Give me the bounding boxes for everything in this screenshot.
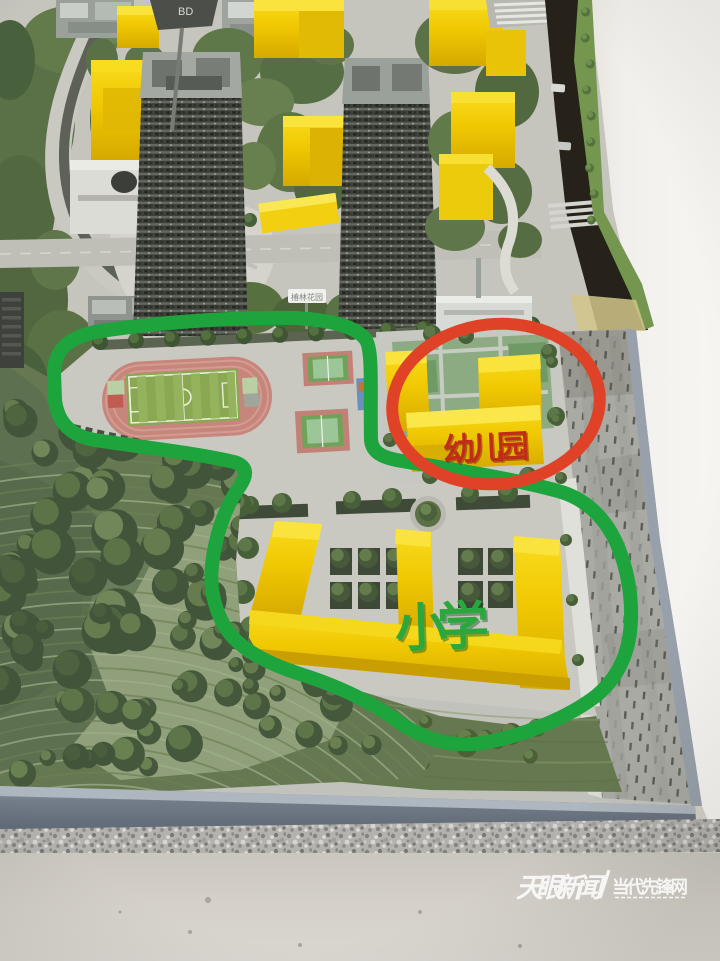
svg-text:当代先锋网: 当代先锋网 bbox=[612, 877, 688, 897]
svg-text:天眼新闻: 天眼新闻 bbox=[516, 873, 606, 903]
